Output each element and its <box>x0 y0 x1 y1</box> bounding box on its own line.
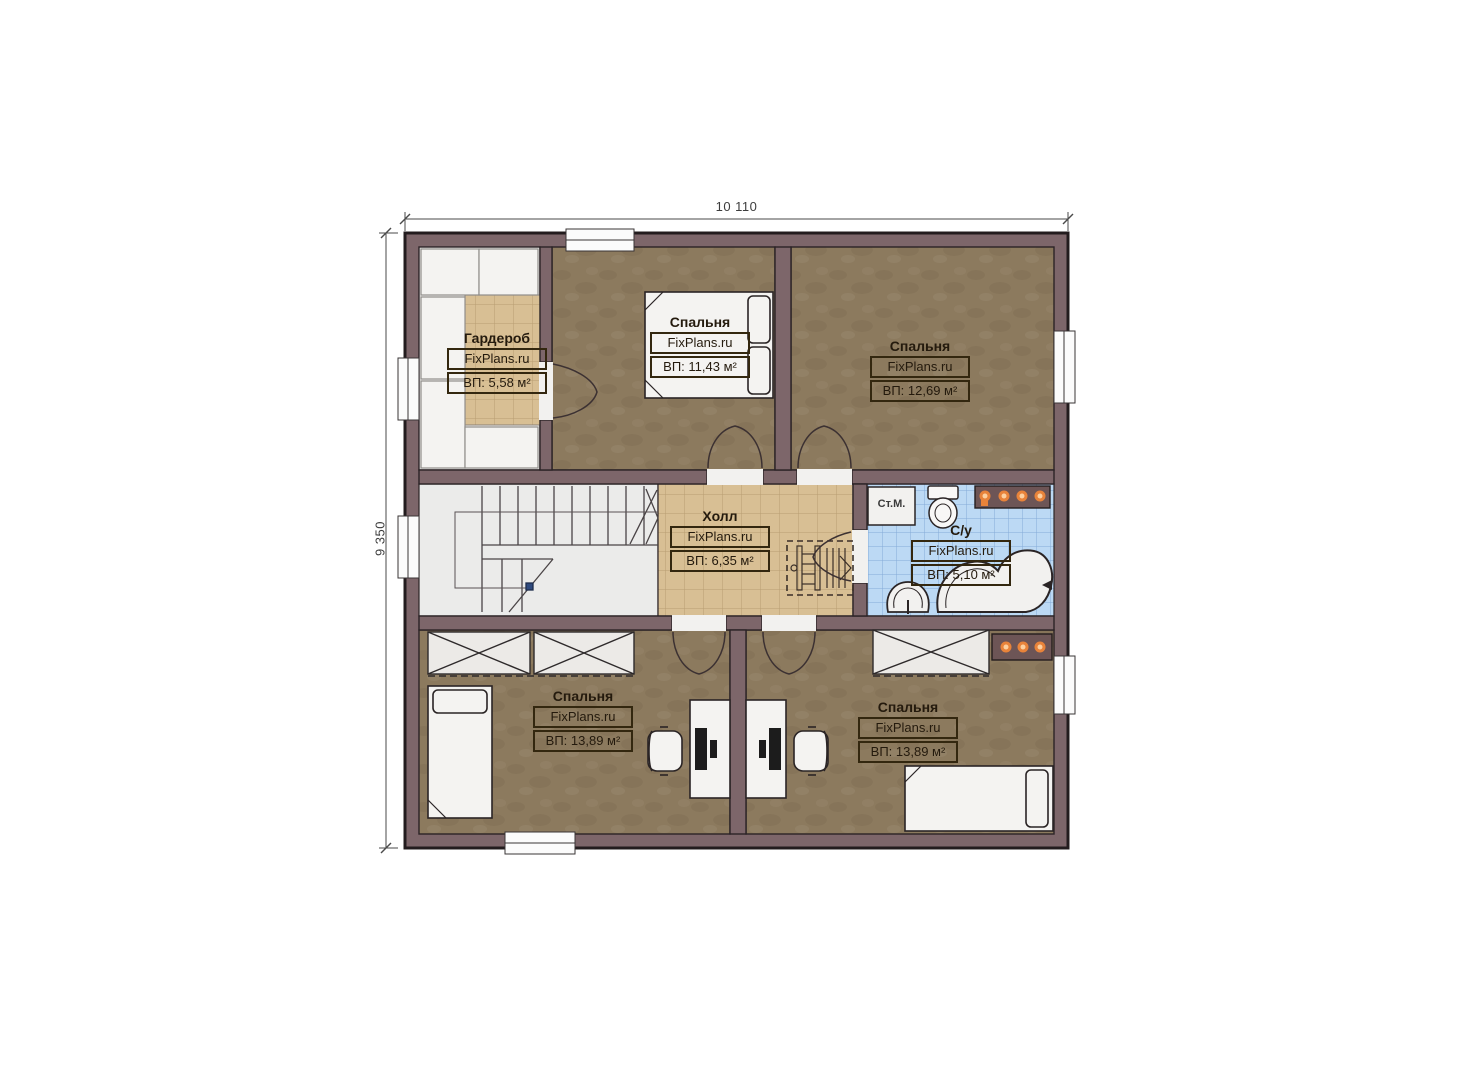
room-label-bedroom-4: Спальня FixPlans.ru ВП: 13,89 м² <box>843 699 973 765</box>
brand-watermark: FixPlans.ru <box>447 348 547 370</box>
washing-machine-label: Ст.М. <box>868 498 915 510</box>
room-name: С/у <box>896 522 1026 538</box>
room-label-wardrobe: Гардероб FixPlans.ru ВП: 5,58 м² <box>432 330 562 396</box>
office-chair-right-icon <box>794 727 828 775</box>
room-area: ВП: 6,35 м² <box>670 550 770 572</box>
room-area: ВП: 5,58 м² <box>447 372 547 394</box>
room-label-hall: Холл FixPlans.ru ВП: 6,35 м² <box>655 508 785 574</box>
dimension-width-label: 10 110 <box>405 199 1068 214</box>
dimension-height-label: 9 350 <box>373 489 388 589</box>
room-label-bedroom-3: Спальня FixPlans.ru ВП: 13,89 м² <box>518 688 648 754</box>
room-label-bedroom-1: Спальня FixPlans.ru ВП: 11,43 м² <box>635 314 765 380</box>
room-name: Гардероб <box>432 330 562 346</box>
room-area: ВП: 11,43 м² <box>650 356 750 378</box>
desk-right-icon <box>746 700 786 798</box>
brand-watermark: FixPlans.ru <box>911 540 1011 562</box>
office-chair-left-icon <box>648 727 682 775</box>
single-bed-right-icon <box>905 766 1053 831</box>
room-name: Спальня <box>855 338 985 354</box>
room-area: ВП: 13,89 м² <box>533 730 633 752</box>
dimension-top <box>400 212 1073 231</box>
dresser-lights-icon <box>992 634 1052 660</box>
desk-left-icon <box>690 700 730 798</box>
room-name: Спальня <box>518 688 648 704</box>
floor-plan-page: 10 110 9 350 Гардероб FixPlans.ru ВП: 5,… <box>0 0 1473 1080</box>
room-name: Спальня <box>843 699 973 715</box>
brand-watermark: FixPlans.ru <box>650 332 750 354</box>
room-area: ВП: 5,10 м² <box>911 564 1011 586</box>
single-bed-left-icon <box>428 686 492 818</box>
room-name: Спальня <box>635 314 765 330</box>
brand-watermark: FixPlans.ru <box>870 356 970 378</box>
room-name: Холл <box>655 508 785 524</box>
room-area: ВП: 12,69 м² <box>870 380 970 402</box>
vanity-lights-icon <box>975 486 1050 508</box>
room-label-bathroom: С/у FixPlans.ru ВП: 5,10 м² <box>896 522 1026 588</box>
brand-watermark: FixPlans.ru <box>533 706 633 728</box>
brand-watermark: FixPlans.ru <box>670 526 770 548</box>
brand-watermark: FixPlans.ru <box>858 717 958 739</box>
room-area: ВП: 13,89 м² <box>858 741 958 763</box>
room-label-bedroom-2: Спальня FixPlans.ru ВП: 12,69 м² <box>855 338 985 404</box>
